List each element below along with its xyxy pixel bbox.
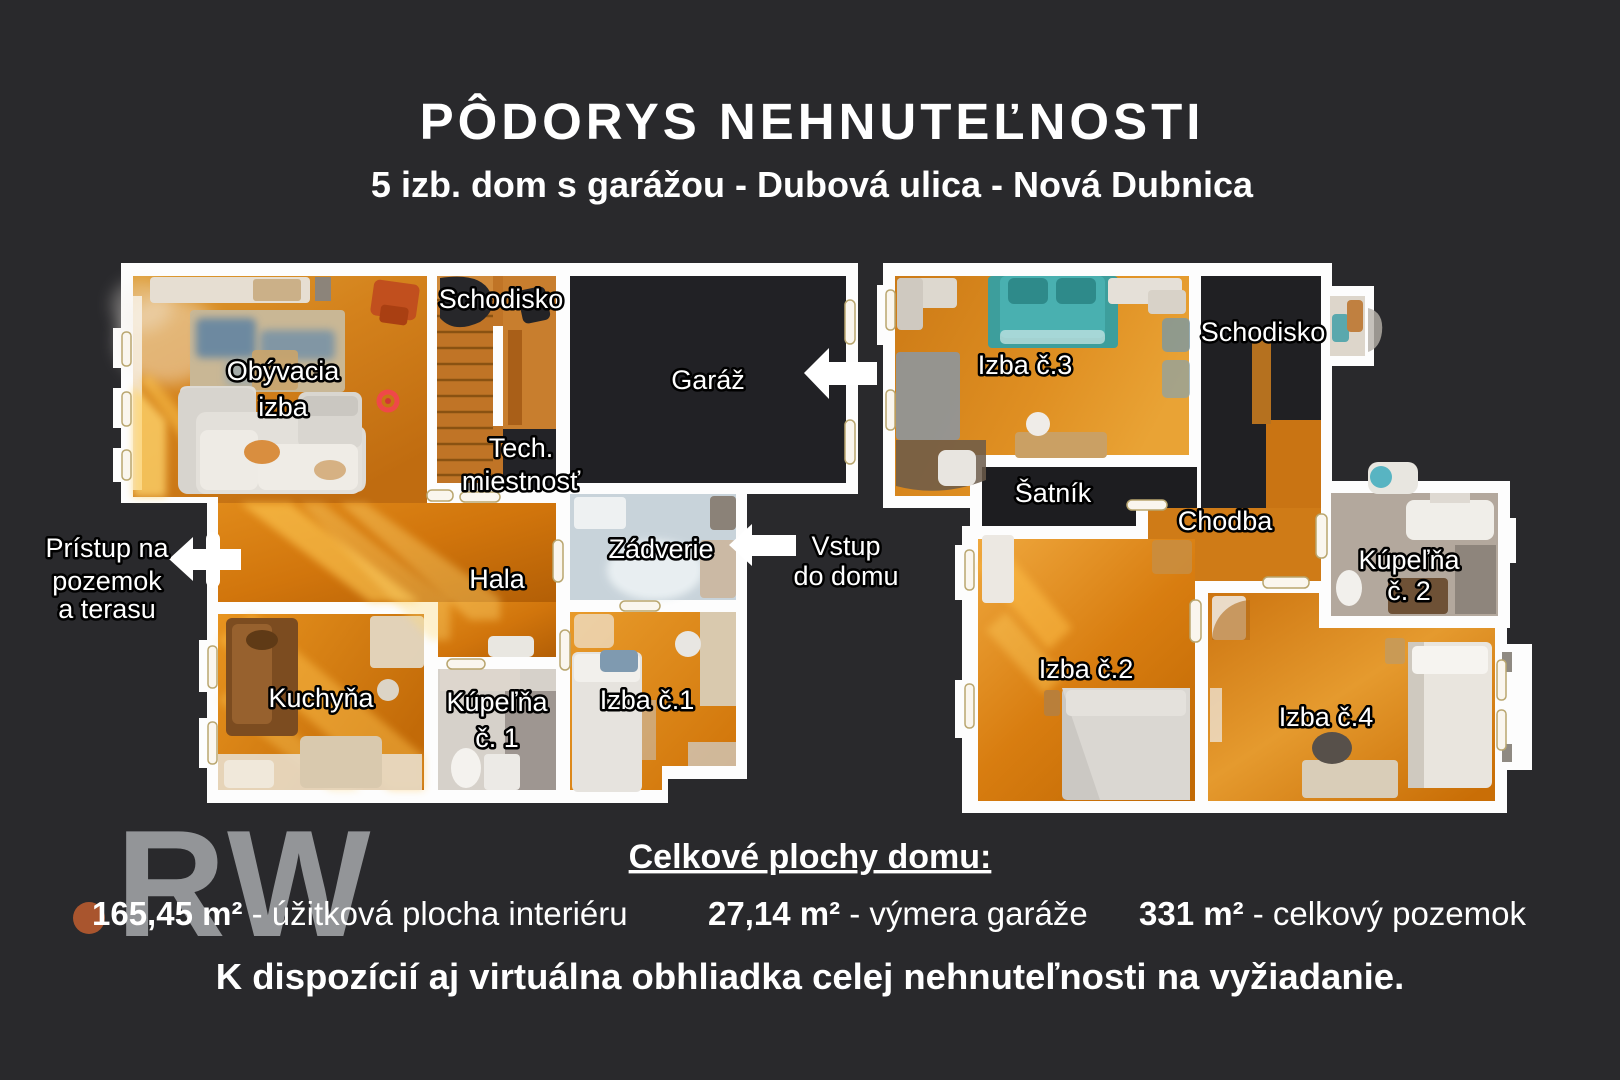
svg-text:č. 1: č. 1 xyxy=(475,723,519,753)
svg-text:do domu: do domu xyxy=(793,561,898,591)
svg-text:Kuchyňa: Kuchyňa xyxy=(268,683,374,713)
svg-text:Šatník: Šatník xyxy=(1015,477,1092,508)
svg-text:miestnosť: miestnosť xyxy=(462,466,581,496)
svg-text:331 m² - celkový pozemok: 331 m² - celkový pozemok xyxy=(1139,895,1526,932)
svg-text:Chodba: Chodba xyxy=(1178,506,1274,536)
svg-text:a terasu: a terasu xyxy=(58,594,156,624)
svg-text:Vstup: Vstup xyxy=(811,531,880,561)
svg-text:č. 2: č. 2 xyxy=(1387,576,1431,606)
svg-text:Izba č.1: Izba č.1 xyxy=(600,685,695,715)
svg-text:165,45 m² - úžitková plocha in: 165,45 m² - úžitková plocha interiéru xyxy=(92,895,628,932)
svg-text:Izba č.2: Izba č.2 xyxy=(1039,654,1134,684)
svg-text:Prístup na: Prístup na xyxy=(45,533,169,563)
svg-text:PÔDORYS NEHNUTEĽNOSTI: PÔDORYS NEHNUTEĽNOSTI xyxy=(420,92,1205,150)
svg-text:27,14 m² - výmera garáže: 27,14 m² - výmera garáže xyxy=(708,895,1088,932)
svg-text:Obývacia: Obývacia xyxy=(227,356,341,386)
svg-text:K dispozícií aj virtuálna obhl: K dispozícií aj virtuálna obhliadka cele… xyxy=(216,956,1404,997)
svg-text:Zádverie: Zádverie xyxy=(608,534,713,564)
svg-text:Izba č.4: Izba č.4 xyxy=(1279,702,1374,732)
svg-text:Hala: Hala xyxy=(469,564,526,594)
svg-text:Schodisko: Schodisko xyxy=(439,284,564,314)
svg-text:5 izb. dom s garážou - Dubová: 5 izb. dom s garážou - Dubová ulica - No… xyxy=(371,164,1254,205)
svg-text:izba: izba xyxy=(258,392,309,422)
svg-text:pozemok: pozemok xyxy=(52,566,162,596)
svg-text:Garáž: Garáž xyxy=(671,365,745,395)
svg-text:RW: RW xyxy=(116,799,375,969)
svg-text:Celkové plochy domu:: Celkové plochy domu: xyxy=(629,838,992,876)
svg-text:Kúpeľňa: Kúpeľňa xyxy=(447,687,549,717)
svg-text:Kúpeľňa: Kúpeľňa xyxy=(1359,545,1461,575)
svg-text:Izba č.3: Izba č.3 xyxy=(978,350,1073,380)
svg-text:Tech.: Tech. xyxy=(489,433,554,463)
svg-text:Schodisko: Schodisko xyxy=(1201,317,1326,347)
